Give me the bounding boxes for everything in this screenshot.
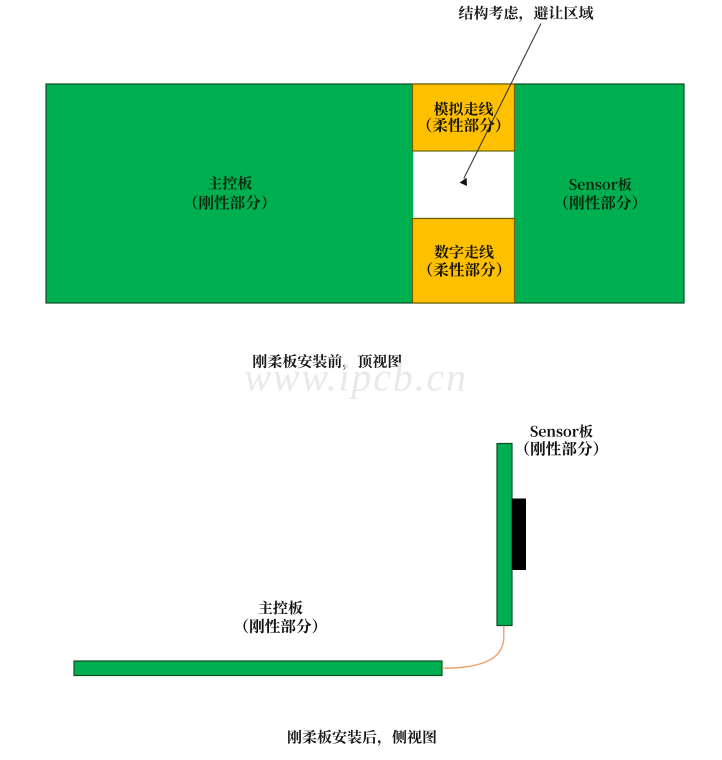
svg-text:www.ipcb.cn: www.ipcb.cn [244, 355, 468, 400]
